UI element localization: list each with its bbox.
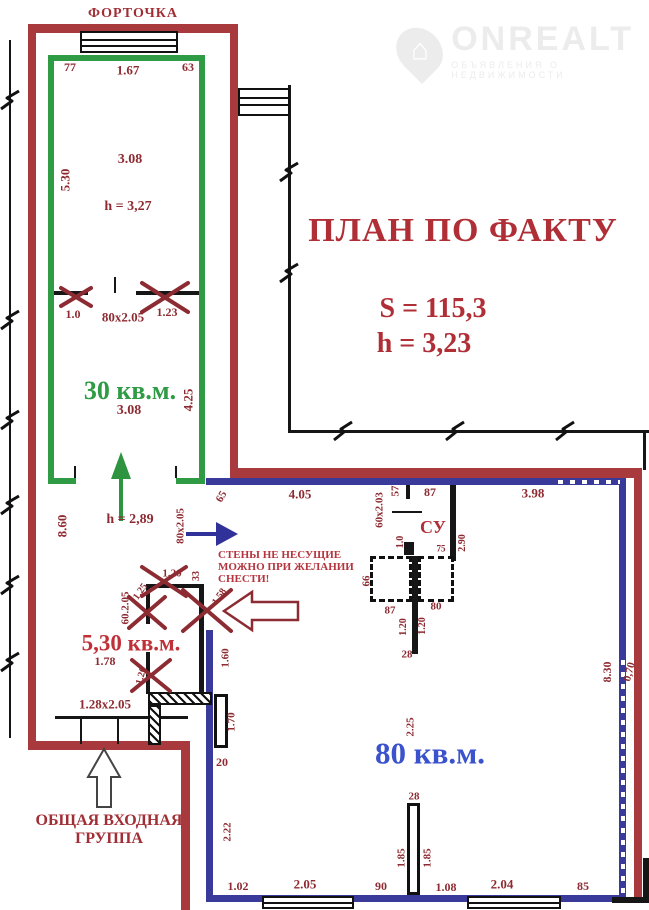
dimension-label: 3.08 — [117, 404, 142, 418]
interior-wall — [146, 584, 203, 588]
dimension-label: 87 — [385, 606, 396, 617]
dimension-label: 1.0 — [66, 308, 81, 320]
room30-wall — [48, 478, 76, 484]
entrance-label-line: ОБЩАЯ ВХОДНАЯ — [24, 812, 194, 830]
floor-plan: ⌂ ONREALT ОБЪЯВЛЕНИЯ О НЕДВИЖИМОСТИ — [0, 0, 649, 910]
dimension-label: 2.25 — [406, 717, 417, 736]
dimension-label: 4.05 — [289, 488, 312, 501]
area-total: S = 115,3 — [380, 295, 487, 323]
interior-wall — [199, 584, 204, 694]
room80-wall — [206, 630, 213, 902]
dimension-label: 28 — [409, 792, 420, 803]
door-leaf-line — [392, 511, 422, 513]
dimension-label: 1.20 — [162, 569, 181, 580]
dimension-label: 60x2.03 — [375, 492, 386, 528]
dimension-label: 4.25 — [182, 389, 195, 412]
dimension-label: 28 — [402, 650, 413, 661]
building-outline-line — [288, 430, 649, 433]
dimension-label: 2.05 — [294, 878, 317, 891]
vestibule-wall — [55, 716, 188, 719]
dimension-label: 75 — [437, 545, 446, 554]
dimension-label: 1.85 — [397, 848, 408, 867]
dimension-label: 57 — [391, 486, 402, 497]
exterior-wall — [230, 24, 238, 478]
vent-window — [80, 31, 178, 53]
building-outline-line — [643, 430, 646, 470]
height-total: h = 3,23 — [377, 330, 472, 358]
vent-label: ФОРТОЧКА — [88, 7, 178, 21]
watermark-brand: ONREALT — [451, 22, 649, 56]
dimension-label: 20 — [216, 756, 228, 768]
building-outline-line — [9, 40, 11, 738]
dimension-label: 80 — [431, 602, 442, 613]
dimension-label: 33 — [192, 571, 202, 581]
dimension-label: 77 — [64, 61, 76, 73]
demolition-note: СТЕНЫ НЕ НЕСУЩИЕ МОЖНО ПРИ ЖЕЛАНИИ СНЕСТ… — [218, 549, 354, 585]
window — [238, 88, 290, 116]
exterior-wall — [28, 741, 190, 750]
onrealt-watermark: ⌂ ONREALT ОБЪЯВЛЕНИЯ О НЕДВИЖИМОСТИ — [398, 22, 649, 80]
dimension-label: 1.20 — [418, 617, 428, 635]
exterior-wall — [28, 24, 36, 750]
dimension-label: 1.60 — [221, 648, 232, 667]
interior-wall — [450, 485, 456, 561]
door-jamb — [406, 485, 410, 499]
dimension-label: 1.20 — [399, 618, 409, 636]
dimension-label: 66 — [362, 576, 373, 587]
left-arrow-outline — [224, 592, 298, 630]
up-arrow-green — [111, 452, 131, 521]
dimension-label: 1.58 — [211, 587, 229, 607]
demolition-note-line: МОЖНО ПРИ ЖЕЛАНИИ — [218, 561, 354, 573]
entrance-up-arrow — [88, 749, 120, 807]
bathroom-fixture — [370, 556, 412, 602]
demolition-note-line: СТЕНЫ НЕ НЕСУЩИЕ — [218, 549, 354, 561]
dimension-label: 80x2.05 — [102, 311, 144, 324]
window — [467, 896, 561, 909]
dimension-label: 2.22 — [223, 822, 234, 841]
wall-stub-28 — [407, 803, 420, 895]
exterior-wall — [230, 468, 642, 478]
dimension-label: h = 2,89 — [106, 513, 153, 527]
dimension-label: 1.0 — [396, 536, 406, 549]
house-pin-icon: ⌂ — [387, 18, 453, 84]
vestibule-wall — [80, 716, 82, 744]
door-jamb — [114, 277, 116, 293]
dimension-label: 80x2.05 — [176, 508, 187, 544]
dimension-label: 65 — [214, 489, 229, 504]
demolition-note-line: СНЕСТИ! — [218, 573, 354, 585]
wall-hatch-dashes — [558, 480, 620, 484]
door-jamb — [74, 466, 76, 478]
right-arrow-blue — [186, 522, 238, 546]
dimension-label: 8.30 — [601, 662, 613, 683]
entrance-label-line: ГРУППА — [24, 830, 194, 848]
dimension-label: 1.02 — [228, 880, 249, 892]
dimension-label: 2.90 — [458, 534, 468, 552]
interior-wall — [643, 858, 649, 903]
room-label-30: 30 кв.м. — [84, 378, 176, 404]
room30-wall — [48, 55, 54, 484]
dimension-label: 5.30 — [59, 169, 72, 192]
hatched-wall — [148, 692, 212, 705]
hatched-wall — [148, 705, 161, 745]
door-jamb — [175, 466, 177, 478]
interior-wall — [136, 291, 199, 295]
dimension-label: 1.67 — [117, 64, 140, 77]
interior-wall — [146, 588, 150, 624]
dimension-label: 87 — [424, 486, 436, 498]
room-label-su: СУ — [420, 518, 446, 536]
dimension-label: 1.28x2.05 — [79, 698, 131, 711]
room30-wall — [199, 55, 205, 484]
window — [262, 896, 354, 909]
entrance-label: ОБЩАЯ ВХОДНАЯ ГРУППА — [24, 812, 194, 848]
dimension-label: 1.85 — [423, 848, 434, 867]
room30-wall — [176, 478, 205, 484]
dimension-label: 1.70 — [227, 712, 238, 731]
dimension-label: 63 — [182, 61, 194, 73]
dimension-label: 90 — [375, 880, 387, 892]
building-outline-line — [288, 85, 291, 433]
watermark-subtext: ОБЪЯВЛЕНИЯ О НЕДВИЖИМОСТИ — [451, 60, 649, 80]
dimension-label: 60.2.05 — [121, 592, 132, 625]
room-label-530: 5,30 кв.м. — [82, 632, 181, 655]
exterior-wall — [634, 468, 642, 902]
bathroom-fixture — [418, 556, 454, 602]
vestibule-wall — [117, 716, 119, 744]
plan-title: ПЛАН ПО ФАКТУ — [308, 214, 618, 248]
dimension-label: 1.23 — [157, 306, 178, 318]
dimension-label: 3.08 — [118, 153, 143, 167]
interior-wall — [54, 291, 88, 295]
marks-overlay — [0, 0, 649, 910]
dimension-label: 3.98 — [522, 487, 545, 500]
dimension-label: 85 — [577, 880, 589, 892]
dimension-label: 8.60 — [56, 515, 69, 538]
room-label-80: 80 кв.м. — [375, 738, 485, 769]
dimension-label: 1.08 — [436, 881, 457, 893]
wall-hatch-dashes — [621, 660, 625, 895]
dimension-label: h = 3,27 — [104, 200, 151, 214]
dimension-label: 1.78 — [95, 655, 116, 667]
dimension-label: 2.04 — [491, 878, 514, 891]
